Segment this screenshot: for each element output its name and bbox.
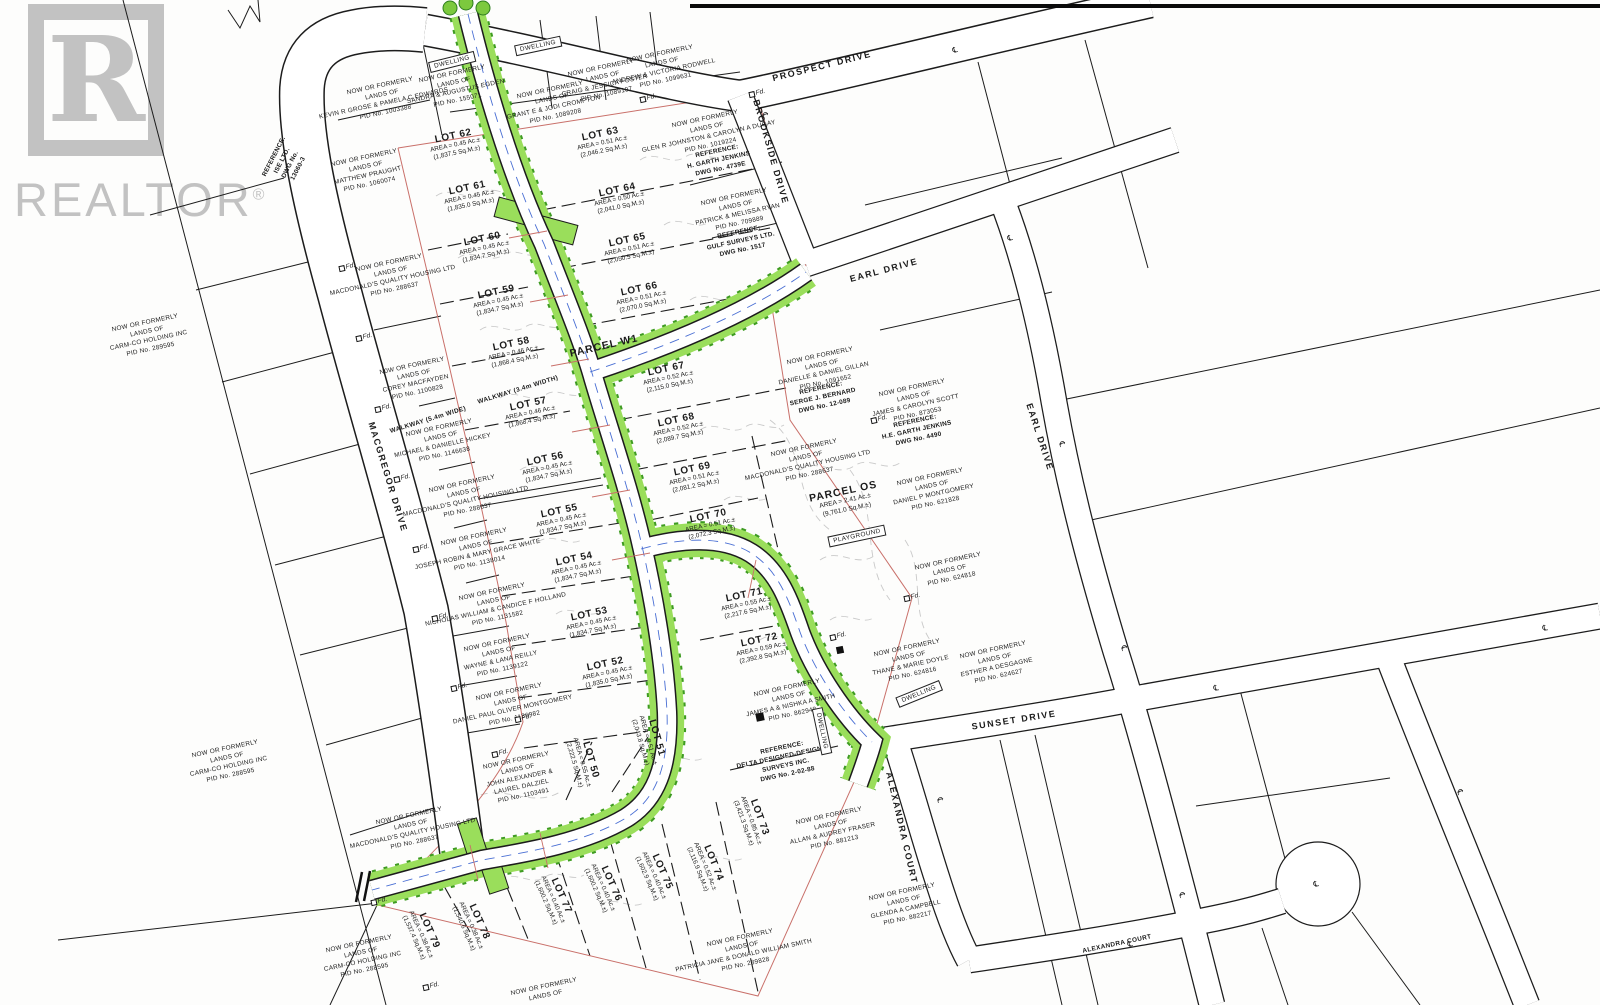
lot-label-lot-68: LOT 68AREA = 0.52 Ac.±(2,089.7 Sq.M.±) bbox=[650, 409, 705, 446]
owner-label: NOW OR FORMERLYLANDS OFESTHER A DESGAGNE… bbox=[956, 639, 1035, 689]
lot-label-lot-58: LOT 58AREA = 0.46 Ac.±(1,868.4 Sq.M.±) bbox=[485, 333, 540, 370]
monument-square-icon bbox=[514, 716, 521, 723]
lot-label-lot-50: LOT 50AREA = 0.55 Ac.±(2,222.5 Sq.M.±) bbox=[563, 734, 603, 790]
lot-label-lot-76: LOT 76AREA = 0.40 Ac.±(1,600.2 Sq.M.±) bbox=[581, 858, 626, 916]
found-monument-marker: Fd. bbox=[639, 93, 657, 103]
lot-label-lot-53: LOT 53AREA = 0.45 Ac.±(1,834.7 Sq.M.±) bbox=[563, 603, 618, 640]
monument-square-icon bbox=[748, 91, 755, 98]
owner-label: NOW OR FORMERLYLANDS OFMACDONALD'S QUALI… bbox=[326, 246, 459, 308]
lot-label-lot-63: LOT 63AREA = 0.51 Ac.±(2,046.2 Sq.M.±) bbox=[574, 123, 629, 160]
parcel-label-parcel-w1: PARCEL W1 bbox=[569, 332, 640, 359]
lot-label-lot-73: LOT 73AREA = 0.85 Ac.±(3,421.3 Sq.M.±) bbox=[731, 791, 774, 848]
lot-label-lot-70: LOT 70AREA = 0.51 Ac.±(2,072.3 Sq.M.±) bbox=[682, 505, 737, 542]
found-monument-marker: Fd. bbox=[422, 981, 440, 991]
centerline-symbol: ℄ bbox=[951, 45, 958, 55]
lot-label-lot-69: LOT 69AREA = 0.51 Ac.±(2,081.2 Sq.M.±) bbox=[666, 458, 721, 495]
owner-label: NOW OR FORMERLYLANDS OFCARM-CO HOLDING I… bbox=[320, 932, 405, 984]
monument-square-icon bbox=[639, 96, 646, 103]
monument-square-icon bbox=[393, 476, 400, 483]
street-label-prospect-drive: PROSPECT DRIVE bbox=[771, 49, 872, 83]
owner-label: NOW OR FORMERLYLANDS OFCARM-CO HOLDING I… bbox=[106, 311, 191, 363]
lot-label-lot-57: LOT 57AREA = 0.46 Ac.±(1,868.4 Sq.M.±) bbox=[502, 393, 557, 430]
centerline-symbol: ℄ bbox=[935, 797, 945, 804]
owner-label: NOW OR FORMERLYLANDS OFWAYNE & LANA REIL… bbox=[460, 632, 541, 683]
lot-label-lot-66: LOT 66AREA = 0.51 Ac.±(2,070.0 Sq.M.±) bbox=[613, 278, 668, 315]
street-label-earl-drive: EARL DRIVE bbox=[1024, 402, 1055, 472]
found-monument-marker: Fd. bbox=[450, 682, 468, 692]
found-monument-marker: Fd. bbox=[491, 748, 509, 758]
owner-label: NOW OR FORMERLYLANDS OFJOHN ALEXANDER &L… bbox=[482, 750, 557, 808]
lot-label-lot-67: LOT 67AREA = 0.52 Ac.±(2,115.0 Sq.M.±) bbox=[640, 358, 695, 395]
owner-label: NOW OR FORMERLYLANDS OFDANIEL P MONTGOME… bbox=[889, 465, 977, 517]
lot-label-lot-78: LOT 78AREA = 0.38 Ac.±(1,540.6 Sq.M.±) bbox=[449, 896, 494, 954]
owner-label: NOW OR FORMERLYLANDS OFJOSEPH ROBIN & MA… bbox=[411, 520, 544, 582]
lot-label-lot-71: LOT 71AREA = 0.55 Ac.±(2,217.6 Sq.M.±) bbox=[718, 584, 773, 621]
monument-square-icon bbox=[491, 751, 498, 758]
found-monument-marker: Fd. bbox=[393, 473, 411, 483]
owner-label: NOW OR FORMERLYLANDS OFANDREW & VICTORIA… bbox=[608, 39, 719, 96]
lot-label-lot-59: LOT 59AREA = 0.45 Ac.±(1,834.7 Sq.M.±) bbox=[470, 281, 525, 318]
monument-square-icon bbox=[829, 634, 836, 641]
lot-label-lot-75: LOT 75AREA = 0.40 Ac.±(1,602.9 Sq.M.±) bbox=[632, 846, 677, 904]
lot-label-lot-62: LOT 62AREA = 0.45 Ac.±(1,837.5 Sq.M.±) bbox=[427, 125, 482, 162]
centerline-symbol: ℄ bbox=[1455, 788, 1465, 796]
lot-label-lot-56: LOT 56AREA = 0.45 Ac.±(1,834.7 Sq.M.±) bbox=[519, 448, 574, 485]
owner-label: NOW OR FORMERLYLANDS OFMACDONALD'S QUALI… bbox=[346, 799, 479, 861]
plat-map-canvas: R REALTOR® bbox=[0, 0, 1600, 1005]
owner-label: NOW OR FORMERLYLANDS OFSANDRA & AUGUSTUS… bbox=[403, 60, 508, 116]
centerline-symbol: ℄ bbox=[1006, 233, 1013, 243]
centerline-symbol: ℄ bbox=[1542, 623, 1548, 633]
street-label-earl-drive: EARL DRIVE bbox=[849, 256, 920, 284]
monument-square-icon bbox=[355, 335, 362, 342]
parcel-label-parcel-os: PARCEL OSAREA = 2.41 Ac.±(9,761.0 Sq.M.±… bbox=[808, 479, 882, 522]
monument-square-icon bbox=[450, 685, 457, 692]
lot-label-lot-64: LOT 64AREA = 0.50 Ac.±(2,041.0 Sq.M.±) bbox=[591, 179, 646, 216]
monument-square-icon bbox=[422, 984, 429, 991]
lot-label-lot-61: LOT 61AREA = 0.45 Ac.±(1,835.0 Sq.M.±) bbox=[441, 177, 496, 214]
found-monument-marker: Fd. bbox=[903, 592, 921, 602]
monument-square-icon bbox=[431, 615, 438, 622]
centerline-symbol: ℄ bbox=[1119, 644, 1129, 651]
centerline-symbol: ℄ bbox=[1313, 879, 1320, 889]
owner-label: NOW OR FORMERLYLANDS OFALLAN & AUDREY FR… bbox=[786, 803, 879, 856]
street-label-alexandra-court: ALEXANDRA COURT bbox=[1082, 933, 1152, 954]
found-monument-marker: Fd. bbox=[748, 88, 766, 98]
lot-label-lot-52: LOT 52AREA = 0.45 Ac.±(1,835.0 Sq.M.±) bbox=[579, 653, 634, 690]
lot-label-lot-77: LOT 77AREA = 0.40 Ac.±(1,600.2 Sq.M.±) bbox=[531, 870, 576, 928]
centerline-symbol: ℄ bbox=[1177, 891, 1187, 898]
owner-label: NOW OR FORMERLYLANDS OFNICHOLAS WILLIAM … bbox=[421, 573, 569, 638]
monument-square-icon bbox=[870, 417, 877, 424]
monument-square-icon bbox=[370, 899, 377, 906]
owner-label: NOW OR FORMERLYLANDS OFPATRICIA JANE & D… bbox=[671, 920, 815, 984]
monument-square-icon bbox=[903, 595, 910, 602]
reference-note: REFERENCE:ISE LTD.DWG No.13060-3 bbox=[261, 135, 313, 191]
monument-square-icon bbox=[412, 546, 419, 553]
monument-square-icon bbox=[374, 406, 381, 413]
owner-label: NOW OR FORMERLYLANDS OFMATTHEW PRAUGHTPI… bbox=[330, 147, 405, 196]
lot-label-lot-55: LOT 55AREA = 0.45 Ac.±(1,834.7 Sq.M.±) bbox=[533, 500, 588, 537]
street-label-alexandra-court: ALEXANDRA COURT bbox=[884, 771, 920, 885]
found-monument-marker: Fd. bbox=[370, 896, 388, 906]
street-label-sunset-drive: SUNSET DRIVE bbox=[971, 708, 1057, 731]
centerline-symbol: ℄ bbox=[1057, 440, 1067, 447]
owner-label: NOW OR FORMERLYLANDS OFTHANE & MARIE DOY… bbox=[868, 636, 952, 687]
lot-label-lot-74: LOT 74AREA = 0.52 Ac.±(2,116.9 Sq.M.±) bbox=[684, 837, 728, 894]
owner-label: NOW OR FORMERLYLANDS OFMACDONALD'S QUALI… bbox=[399, 467, 532, 529]
owner-label: N0W OR FORMERLYLANDS OFCOREY MACFAYDENPI… bbox=[378, 355, 451, 404]
found-monument-marker: Fd. bbox=[829, 631, 847, 641]
owner-label: NOW OR FORMERLYLANDS OFCARM-CO HOLDING I… bbox=[186, 737, 271, 789]
lot-label-lot-79: LOT 79AREA = 0.38 Ac.±(1,537.4 Sq.M.±) bbox=[399, 905, 444, 963]
lot-label-lot-72: LOT 72AREA = 0.59 Ac.±(2,392.8 Sq.M.±) bbox=[733, 629, 788, 666]
owner-label: NOW OR FORMERLYLANDS OF bbox=[510, 976, 580, 1005]
owner-label: NOW OR FORMERLYLANDS OFPID No. 624818 bbox=[914, 551, 986, 591]
lot-label-lot-60: LOT 60AREA = 0.45 Ac.±(1,834.7 Sq.M.±) bbox=[456, 228, 511, 265]
found-monument-marker: Fd. bbox=[374, 403, 392, 413]
centerline-symbol: ℄ bbox=[1213, 683, 1219, 693]
site-label-dwelling: DWELLING bbox=[895, 680, 942, 708]
label-layer: LOT 50AREA = 0.55 Ac.±(2,222.5 Sq.M.±)LO… bbox=[0, 0, 1600, 1005]
owner-label: NOW OR FORMERLYLANDS OFGLENDA A CAMPBELL… bbox=[866, 881, 943, 931]
lot-label-lot-51: LOT 51AREA = 0.51 Ac.±(2,043.8 Sq.M.±) bbox=[629, 712, 669, 768]
site-label-playground: PLAYGROUND bbox=[827, 525, 886, 548]
found-monument-marker: Fd. bbox=[355, 332, 373, 342]
monument-square-icon bbox=[338, 265, 345, 272]
lot-label-lot-65: LOT 65AREA = 0.51 Ac.±(2,050.5 Sq.M.±) bbox=[601, 229, 656, 266]
site-label-dwelling: DWELLING bbox=[514, 36, 562, 56]
